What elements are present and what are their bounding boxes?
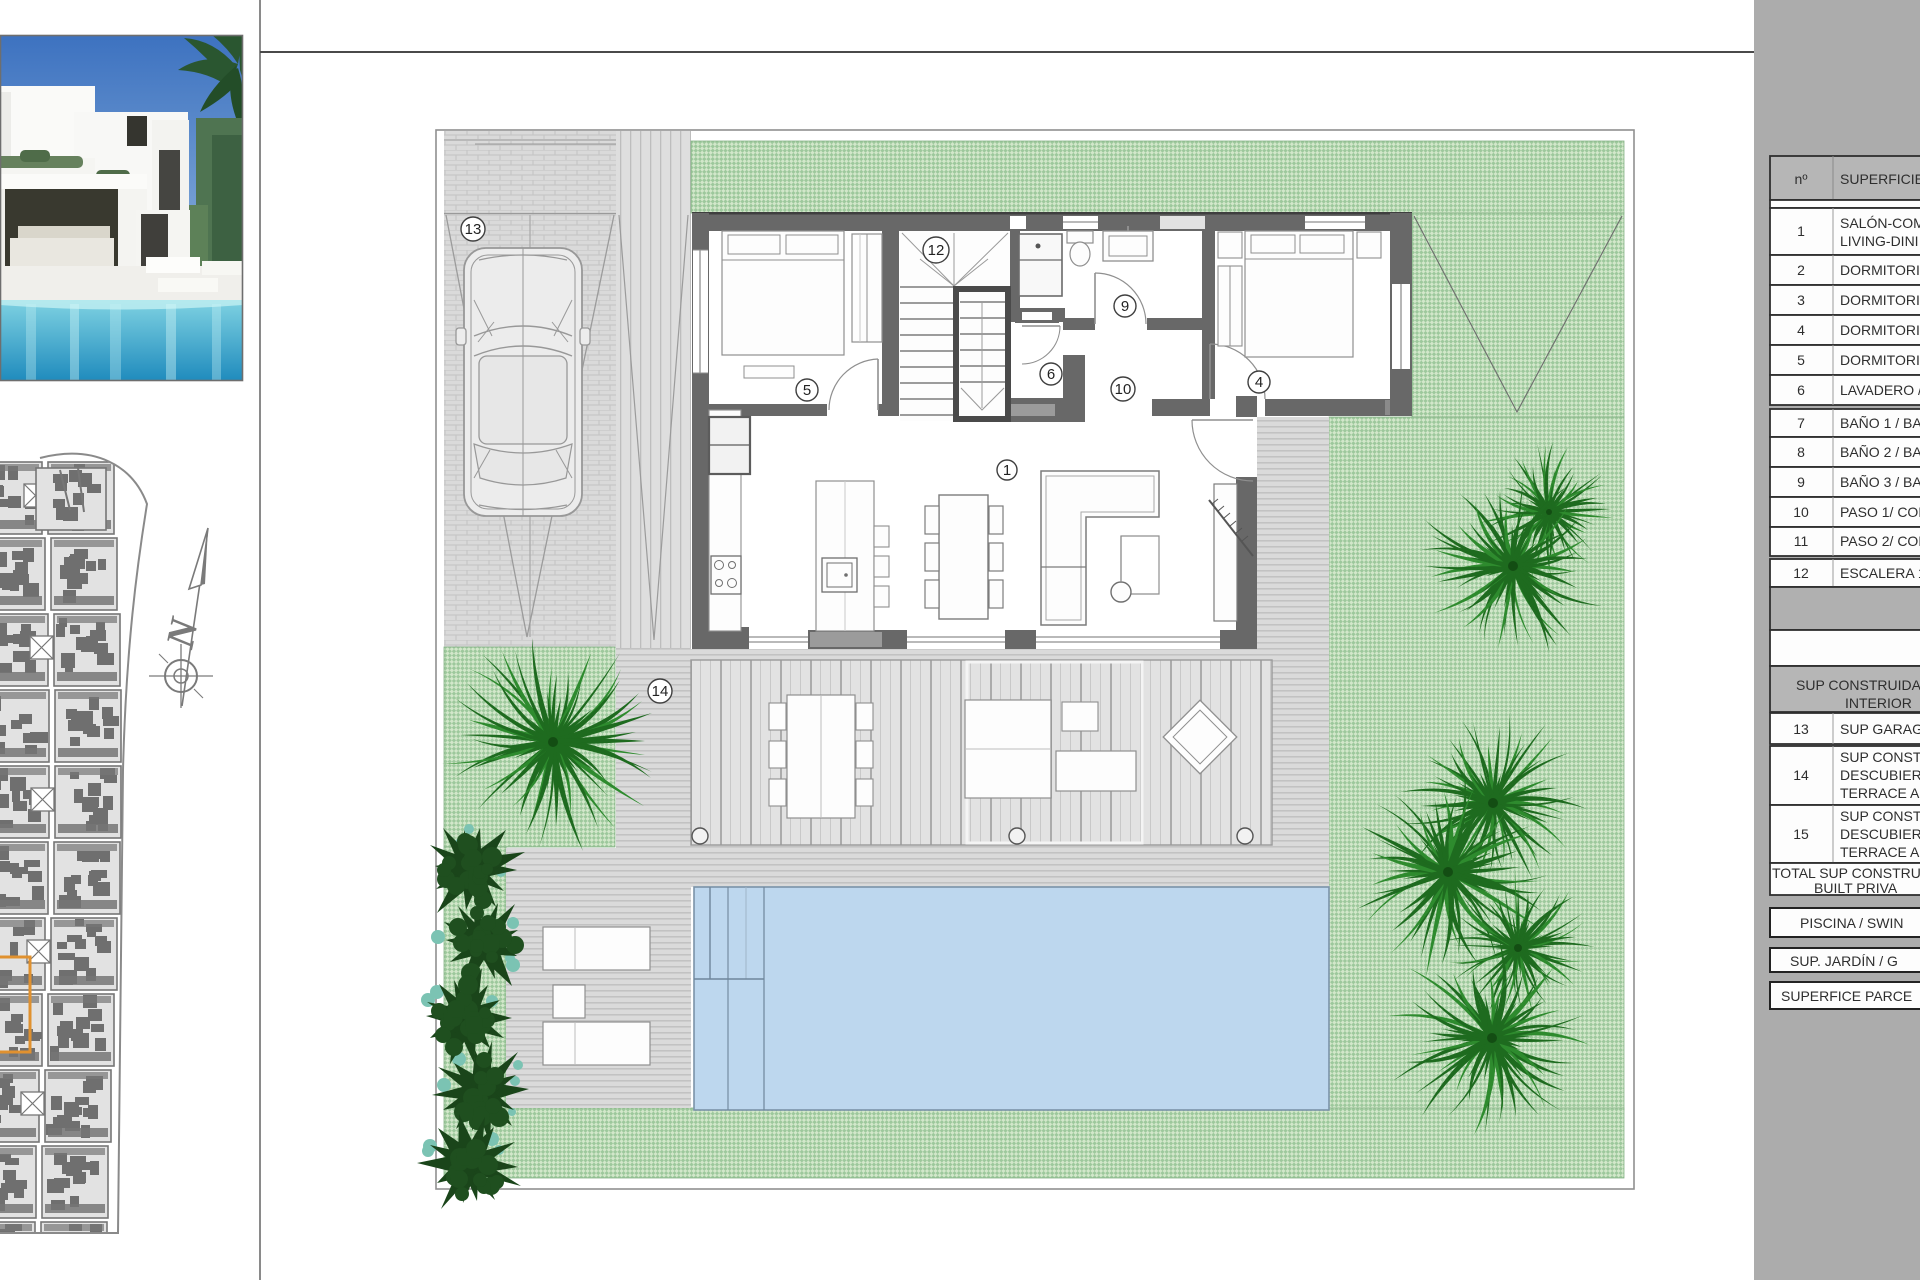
svg-text:1: 1 [1797,223,1805,239]
svg-text:DORMITORIO: DORMITORIO [1840,322,1920,338]
svg-text:BUILT PRIVA: BUILT PRIVA [1814,880,1898,896]
svg-text:TOTAL SUP CONSTRUID: TOTAL SUP CONSTRUID [1772,865,1920,881]
svg-text:SUPERFICE PARCE: SUPERFICE PARCE [1781,988,1912,1004]
svg-text:4: 4 [1255,374,1263,391]
svg-text:SUP CONSTRUIDA: SUP CONSTRUIDA [1796,677,1920,693]
svg-text:13: 13 [1793,721,1809,737]
svg-text:9: 9 [1797,474,1805,490]
svg-text:15: 15 [1793,826,1809,842]
svg-text:11: 11 [1794,533,1809,549]
svg-text:N: N [157,612,208,653]
svg-text:PASO 1/ COR: PASO 1/ COR [1840,504,1920,520]
svg-text:BAÑO 3 / BA: BAÑO 3 / BA [1840,474,1920,490]
svg-text:BAÑO 2 / BA: BAÑO 2 / BA [1840,444,1920,460]
svg-text:2: 2 [1797,262,1805,278]
svg-text:nº: nº [1795,171,1808,187]
svg-text:SUPERFICIE U: SUPERFICIE U [1840,171,1920,187]
svg-text:SUP GARAGE: SUP GARAGE [1840,721,1920,737]
svg-text:10: 10 [1115,381,1132,398]
svg-text:14: 14 [652,683,669,700]
svg-text:5: 5 [1797,352,1805,368]
svg-text:9: 9 [1121,298,1129,315]
svg-text:BAÑO 1 / BA: BAÑO 1 / BA [1840,415,1920,431]
svg-text:6: 6 [1797,382,1805,398]
svg-text:DORMITORIO: DORMITORIO [1840,292,1920,308]
svg-text:PASO 2/ COR: PASO 2/ COR [1840,533,1920,549]
svg-text:6: 6 [1047,366,1055,383]
svg-text:4: 4 [1797,322,1805,338]
svg-text:PISCINA / SWIN: PISCINA / SWIN [1800,915,1903,931]
svg-text:5: 5 [803,382,811,399]
svg-text:DESCUBIERTA: DESCUBIERTA [1840,826,1920,842]
svg-text:13: 13 [465,221,482,238]
svg-text:INTERIOR: INTERIOR [1845,695,1912,711]
svg-text:3: 3 [1797,292,1805,308]
svg-text:8: 8 [1797,444,1805,460]
svg-text:SUP CONSTR: SUP CONSTR [1840,808,1920,824]
svg-text:DESCUBIERTA: DESCUBIERTA [1840,767,1920,783]
svg-text:1: 1 [1003,462,1011,479]
svg-text:7: 7 [1797,415,1805,431]
svg-text:LIVING-DINI: LIVING-DINI [1840,233,1919,249]
svg-text:ESCALERA 1 /: ESCALERA 1 / [1840,565,1920,581]
svg-text:LAVADERO /: LAVADERO / [1840,382,1920,398]
svg-text:DORMITORIO: DORMITORIO [1840,352,1920,368]
svg-text:SALÓN-COM: SALÓN-COM [1840,215,1920,231]
svg-text:12: 12 [1793,565,1809,581]
svg-text:12: 12 [928,242,945,259]
svg-text:14: 14 [1793,767,1809,783]
svg-text:TERRACE ARE: TERRACE ARE [1840,785,1920,801]
svg-text:SUP CONSTR: SUP CONSTR [1840,749,1920,765]
svg-text:DORMITORIO: DORMITORIO [1840,262,1920,278]
svg-text:10: 10 [1793,504,1809,520]
svg-text:SUP. JARDÍN / G: SUP. JARDÍN / G [1790,953,1898,969]
svg-text:TERRACE ARE: TERRACE ARE [1840,844,1920,860]
